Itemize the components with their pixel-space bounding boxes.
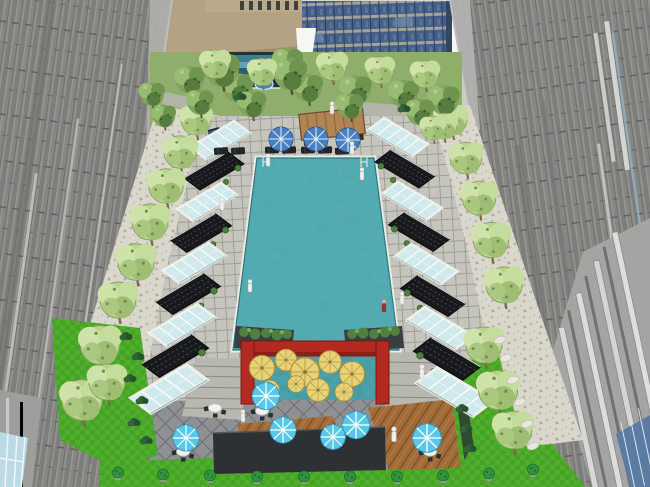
umbrella-cyan [413,424,442,453]
umbrella-yellow [319,351,342,374]
umbrella-yellow [307,379,330,402]
rendering-stage [0,0,650,487]
person [400,292,404,305]
person [241,410,245,423]
person [350,142,354,155]
person [330,102,334,115]
umbrella-cyan [270,417,296,443]
umbrella-blue [269,127,293,151]
lounger [231,147,245,155]
umbrellas-north [269,127,360,152]
umbrella-blue [336,128,360,152]
umbrella-yellow [249,355,274,380]
swimming-pool [233,155,399,350]
lounger [214,147,228,155]
umbrella-cyan [321,425,346,450]
person [360,168,364,181]
person [266,154,270,167]
umbrella-cyan [173,425,199,451]
umbrella-cyan [342,411,369,438]
person [392,427,397,442]
person [220,198,224,211]
pool-courtyard-rendering [0,0,650,487]
umbrella-blue [304,127,328,151]
person [382,300,386,313]
person [248,280,252,293]
umbrella-cyan [252,382,279,409]
umbrella-yellow [288,376,305,393]
person [420,365,424,379]
umbrella-yellow [335,383,353,401]
